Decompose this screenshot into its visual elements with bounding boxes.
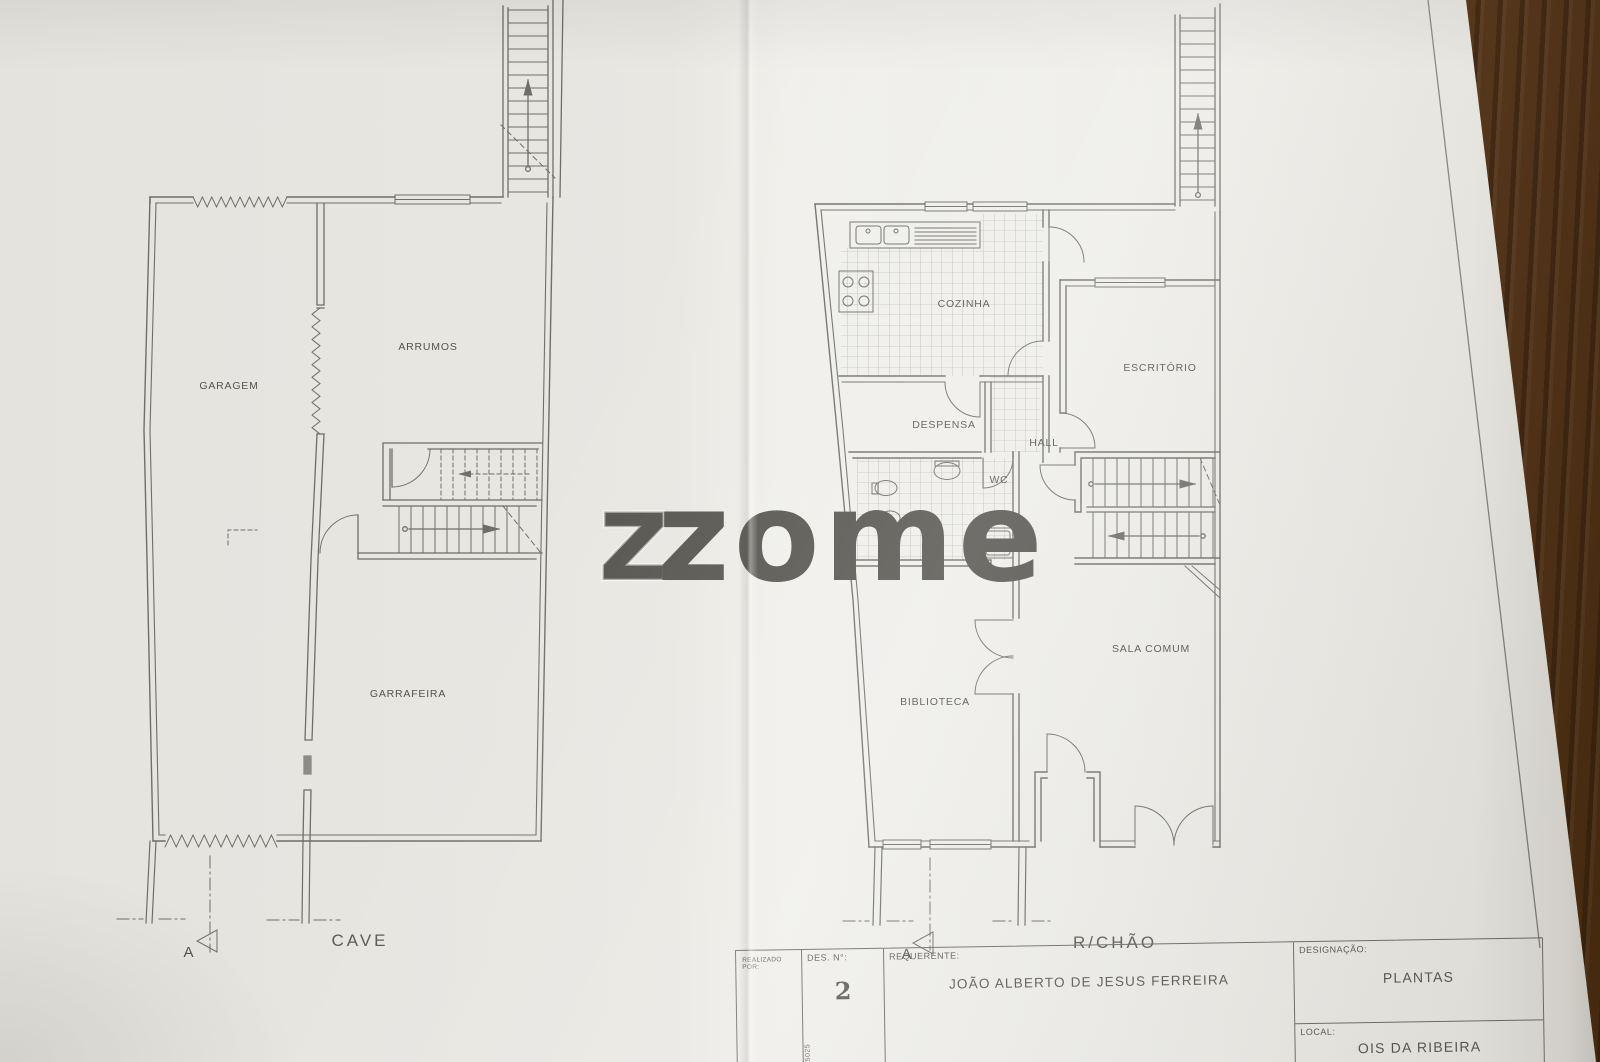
garage-door-zigzag	[165, 197, 287, 847]
section-cut-line	[843, 847, 1053, 954]
drawing-sheet: A CAVE GARAGEM ARRUMOS GARRAFEIRA	[0, 0, 1600, 1062]
local-value: OIS DA RIBEIRA	[1296, 1037, 1544, 1057]
hall-stair-door	[1040, 465, 1075, 500]
escritorio-door	[1060, 413, 1095, 448]
cave-floor-plan: A CAVE GARAGEM ARRUMOS GARRAFEIRA	[105, 0, 575, 960]
room-label-escritorio: ESCRITÓRIO	[1123, 361, 1196, 374]
room-label-cozinha: COZINHA	[938, 298, 991, 310]
photo-of-floor-plans: A CAVE GARAGEM ARRUMOS GARRAFEIRA	[0, 0, 1600, 1062]
plan-title-cave: CAVE	[331, 931, 388, 950]
room-label-garrafeira: GARRAFEIRA	[370, 688, 446, 700]
room-label-despensa: DESPENSA	[912, 419, 976, 431]
title-block: REALIZADO POR: DES. N°: 2 0831-65025 REQ…	[735, 937, 1545, 1062]
window	[395, 195, 470, 204]
cave-outer-walls	[144, 197, 553, 841]
interior-staircase	[1075, 452, 1220, 564]
section-cut-line	[117, 841, 340, 952]
des-n-label: DES. N°:	[802, 949, 883, 963]
exterior-staircase	[501, 0, 555, 197]
room-label-arrumos: ARRUMOS	[398, 341, 457, 353]
garage-divider-wall	[303, 203, 324, 841]
exterior-staircase	[1175, 4, 1220, 212]
local-label: LOCAL:	[1295, 1020, 1543, 1037]
ground-floor-plan: A R/CHÃO COZINHA ESCRITÓRIO DESPENSA HAL…	[795, 0, 1245, 960]
porch-door	[1049, 227, 1084, 262]
double-door-biblioteca-sala	[975, 620, 1013, 694]
alcove-door	[1047, 734, 1085, 772]
section-marker-a: A	[183, 944, 194, 961]
room-label-biblioteca: BIBLIOTECA	[900, 696, 970, 708]
stair-entrance-door	[320, 515, 358, 553]
realizado-por-label: REALIZADO POR:	[736, 950, 801, 971]
despensa-door	[945, 382, 980, 417]
designacao-label: DESIGNAÇÃO:	[1294, 938, 1542, 955]
section-arrow-triangle	[197, 930, 217, 952]
site-boundary-line	[560, 0, 563, 197]
requerente-value: JOÃO ALBERTO DE JESUS FERREIRA	[884, 971, 1293, 992]
title-block-local-cell: LOCAL: OIS DA RIBEIRA	[1295, 1020, 1543, 1057]
room-label-garagem: GARAGEM	[199, 380, 258, 392]
designacao-value: PLANTAS	[1294, 967, 1542, 987]
title-block-realizado-cell: REALIZADO POR:	[736, 950, 804, 1062]
title-block-requerente-cell: REQUERENTE: JOÃO ALBERTO DE JESUS FERREI…	[884, 942, 1296, 1062]
drawing-number: 2	[802, 976, 883, 1006]
garage-dashed-mark	[228, 530, 257, 545]
room-label-wc: WC	[989, 474, 1008, 486]
side-code: 0831-65025	[804, 1043, 812, 1062]
drainboard	[915, 228, 976, 244]
title-block-designacao-cell: DESIGNAÇÃO: PLANTAS LOCAL: OIS DA RIBEIR…	[1294, 938, 1544, 1062]
room-label-hall: HALL	[1029, 437, 1058, 449]
interior-staircase	[320, 443, 542, 559]
room-label-sala-comum: SALA COMUM	[1112, 643, 1190, 655]
title-block-des-cell: DES. N°: 2 0831-65025	[802, 949, 886, 1062]
french-double-door	[1135, 806, 1213, 845]
closet-door	[392, 449, 430, 487]
